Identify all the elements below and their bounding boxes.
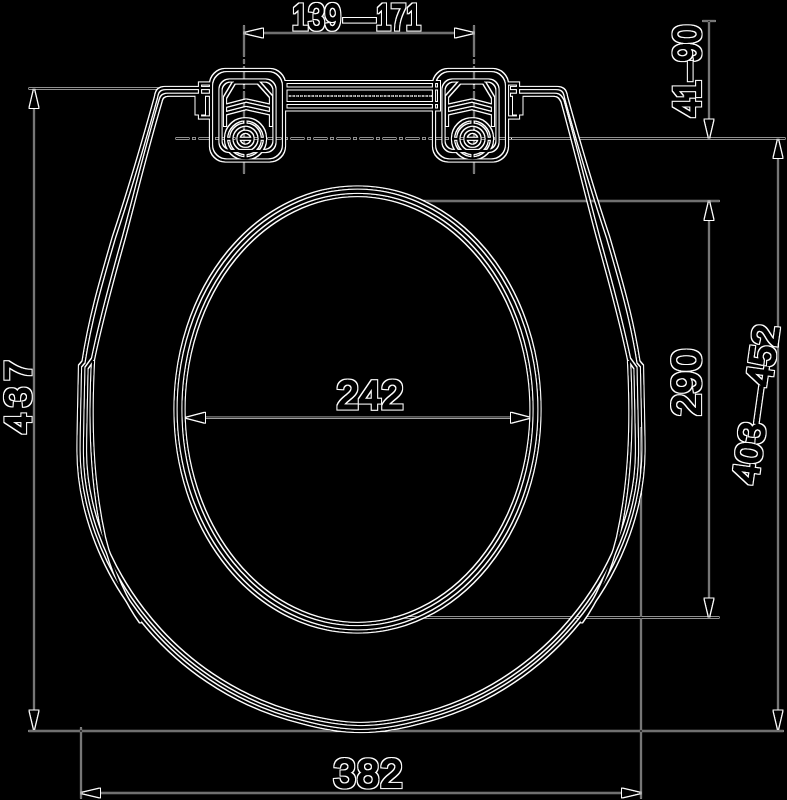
svg-text:139—171: 139—171 <box>292 0 421 38</box>
svg-text:290: 290 <box>665 349 709 416</box>
svg-text:437: 437 <box>0 361 39 434</box>
svg-text:41–90: 41–90 <box>667 25 709 117</box>
svg-text:242: 242 <box>337 374 404 418</box>
svg-text:382: 382 <box>334 752 403 796</box>
